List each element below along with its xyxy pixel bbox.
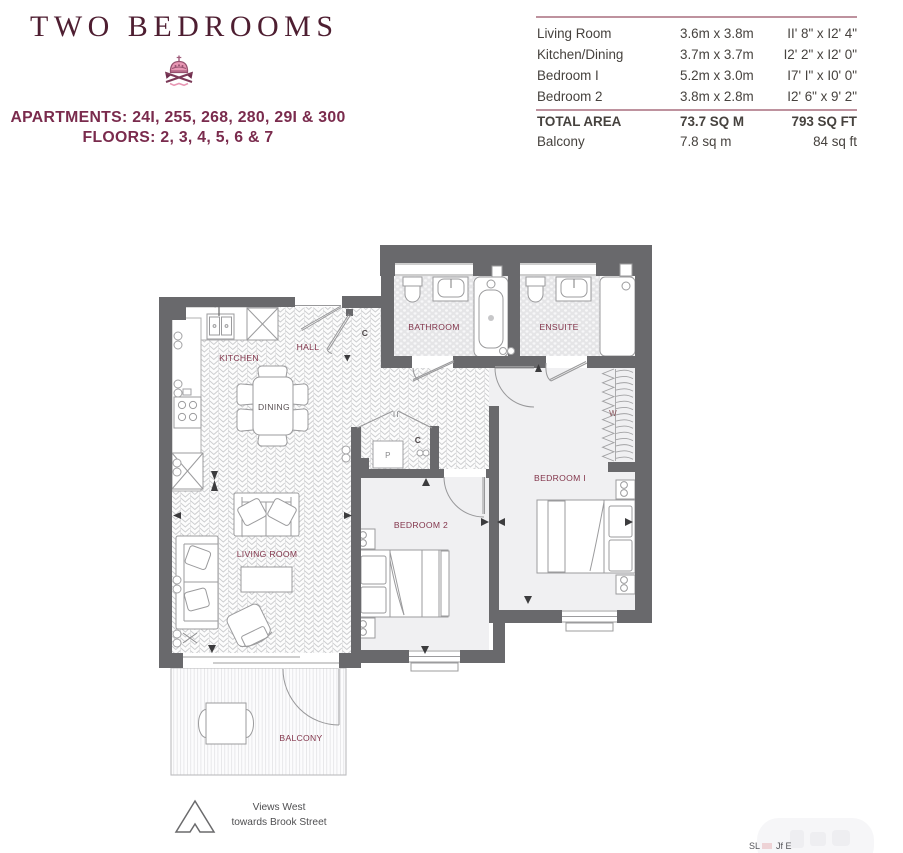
svg-text:FLOORS: 2, 3, 4, 5, 6 & 7: FLOORS: 2, 3, 4, 5, 6 & 7: [83, 129, 274, 146]
svg-text:BALCONY: BALCONY: [279, 733, 322, 743]
svg-text:3.6m x 3.8m: 3.6m x 3.8m: [680, 26, 754, 41]
svg-text:7.8 sq m: 7.8 sq m: [680, 134, 731, 149]
svg-text:5.2m x 3.0m: 5.2m x 3.0m: [680, 68, 754, 83]
svg-text:ENSUITE: ENSUITE: [539, 322, 578, 332]
svg-text:C: C: [415, 435, 421, 445]
svg-text:Living Room: Living Room: [537, 26, 611, 41]
svg-text:BEDROOM I: BEDROOM I: [534, 473, 586, 483]
svg-text:APARTMENTS: 24I, 255, 268, 280: APARTMENTS: 24I, 255, 268, 280, 29I & 30…: [10, 109, 345, 126]
svg-text:DINING: DINING: [258, 402, 290, 412]
svg-text:Bedroom I: Bedroom I: [537, 68, 599, 83]
svg-text:TWO BEDROOMS: TWO BEDROOMS: [30, 10, 339, 43]
svg-text:towards Brook Street: towards Brook Street: [231, 817, 326, 828]
svg-text:3.7m x 3.7m: 3.7m x 3.7m: [680, 47, 754, 62]
svg-text:793 SQ FT: 793 SQ FT: [792, 114, 858, 129]
svg-text:C: C: [362, 328, 368, 338]
svg-text:Kitchen/Dining: Kitchen/Dining: [537, 47, 623, 62]
svg-text:KITCHEN: KITCHEN: [219, 353, 259, 363]
svg-text:84 sq ft: 84 sq ft: [813, 134, 857, 149]
svg-text:BEDROOM 2: BEDROOM 2: [394, 520, 448, 530]
svg-text:Views West: Views West: [253, 802, 306, 813]
svg-text:Balcony: Balcony: [537, 134, 585, 149]
svg-text:SL: SL: [749, 841, 760, 851]
svg-text:I7' I" x I0' 0": I7' I" x I0' 0": [787, 68, 857, 83]
svg-text:P: P: [385, 451, 391, 460]
svg-text:I2' 2" x I2' 0": I2' 2" x I2' 0": [784, 47, 858, 62]
svg-text:Bedroom 2: Bedroom 2: [537, 89, 603, 104]
svg-text:W: W: [609, 409, 617, 418]
svg-text:BATHROOM: BATHROOM: [408, 322, 459, 332]
svg-text:TOTAL AREA: TOTAL AREA: [537, 114, 622, 129]
svg-text:3.8m x 2.8m: 3.8m x 2.8m: [680, 89, 754, 104]
svg-text:I2' 6" x 9' 2": I2' 6" x 9' 2": [787, 89, 857, 104]
svg-text:HALL: HALL: [297, 342, 320, 352]
svg-text:73.7 SQ M: 73.7 SQ M: [680, 114, 744, 129]
svg-text:LIVING ROOM: LIVING ROOM: [237, 549, 298, 559]
svg-text:II' 8" x I2' 4": II' 8" x I2' 4": [787, 26, 857, 41]
svg-text:Jf E: Jf E: [776, 841, 792, 851]
